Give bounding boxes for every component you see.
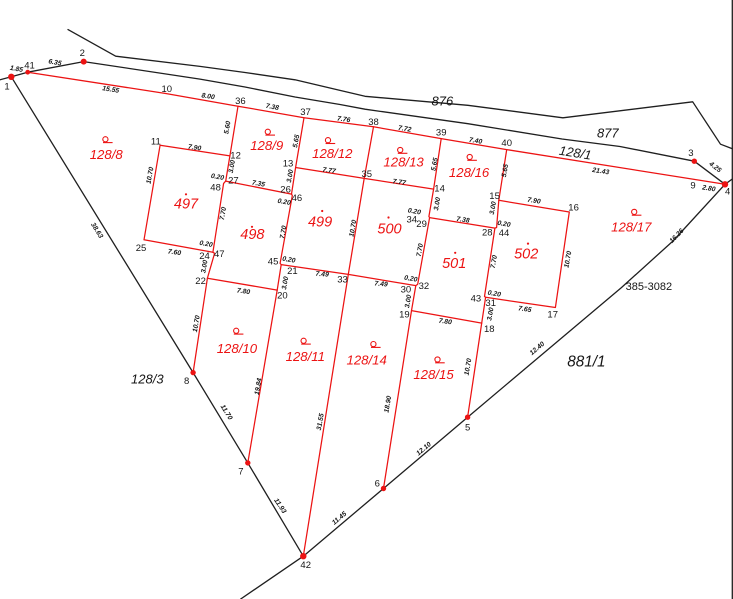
svg-text:29: 29	[416, 219, 427, 230]
svg-text:14: 14	[434, 183, 445, 194]
svg-text:30: 30	[401, 285, 412, 296]
svg-text:26: 26	[280, 185, 291, 196]
svg-text:32: 32	[419, 281, 430, 292]
svg-text:500: 500	[377, 222, 401, 238]
svg-text:499: 499	[308, 215, 332, 231]
svg-text:17: 17	[547, 310, 558, 321]
svg-text:19: 19	[399, 309, 410, 320]
svg-text:10: 10	[162, 84, 173, 95]
svg-text:128/17: 128/17	[611, 219, 652, 234]
svg-text:25: 25	[136, 243, 147, 254]
svg-text:47: 47	[214, 249, 225, 260]
svg-text:31: 31	[485, 298, 496, 309]
svg-text:1: 1	[4, 82, 9, 93]
svg-text:39: 39	[436, 128, 447, 139]
svg-text:36: 36	[235, 96, 246, 107]
svg-text:128/14: 128/14	[347, 352, 387, 367]
svg-text:2: 2	[80, 48, 85, 59]
svg-text:20: 20	[277, 291, 288, 302]
svg-text:40: 40	[501, 138, 512, 149]
svg-text:501: 501	[442, 256, 466, 272]
svg-text:385-3082: 385-3082	[626, 281, 673, 293]
svg-text:498: 498	[240, 227, 264, 243]
svg-text:11: 11	[151, 137, 161, 148]
svg-text:16: 16	[568, 203, 579, 214]
svg-text:7.49: 7.49	[315, 271, 329, 279]
svg-text:877: 877	[597, 126, 619, 141]
svg-text:128/13: 128/13	[383, 155, 424, 170]
svg-text:35: 35	[362, 169, 373, 180]
svg-text:34: 34	[407, 214, 418, 225]
svg-text:28: 28	[482, 227, 493, 238]
svg-text:43: 43	[471, 294, 482, 305]
svg-text:502: 502	[514, 247, 538, 263]
svg-text:5: 5	[465, 422, 470, 433]
svg-text:3: 3	[688, 148, 693, 159]
svg-text:7: 7	[238, 466, 243, 477]
svg-text:881/1: 881/1	[567, 354, 605, 371]
svg-text:8: 8	[184, 376, 189, 387]
svg-text:128/9: 128/9	[250, 138, 284, 153]
svg-text:876: 876	[432, 93, 454, 108]
svg-text:42: 42	[300, 560, 311, 571]
svg-text:21: 21	[287, 266, 298, 277]
svg-text:128/8: 128/8	[90, 147, 124, 162]
svg-text:128/11: 128/11	[286, 349, 325, 364]
svg-text:9: 9	[690, 180, 695, 191]
svg-text:45: 45	[268, 256, 279, 267]
svg-text:37: 37	[300, 107, 311, 118]
svg-text:27: 27	[228, 176, 239, 187]
svg-text:6: 6	[375, 478, 380, 489]
svg-text:497: 497	[174, 196, 199, 212]
svg-text:128/15: 128/15	[413, 367, 454, 382]
svg-text:38: 38	[368, 117, 379, 128]
svg-text:128/3: 128/3	[131, 371, 164, 386]
svg-text:7.49: 7.49	[374, 280, 388, 288]
svg-text:128/12: 128/12	[312, 146, 353, 161]
svg-text:22: 22	[195, 276, 206, 287]
svg-text:13: 13	[283, 158, 294, 169]
svg-text:128/10: 128/10	[217, 341, 258, 356]
svg-text:128/16: 128/16	[449, 165, 490, 180]
svg-text:18: 18	[484, 324, 495, 335]
svg-text:46: 46	[292, 193, 303, 204]
svg-text:4: 4	[725, 186, 730, 197]
svg-text:41: 41	[24, 61, 35, 72]
svg-text:15: 15	[489, 191, 500, 202]
svg-text:44: 44	[499, 228, 510, 239]
svg-text:33: 33	[337, 274, 348, 285]
svg-text:48: 48	[210, 182, 221, 193]
